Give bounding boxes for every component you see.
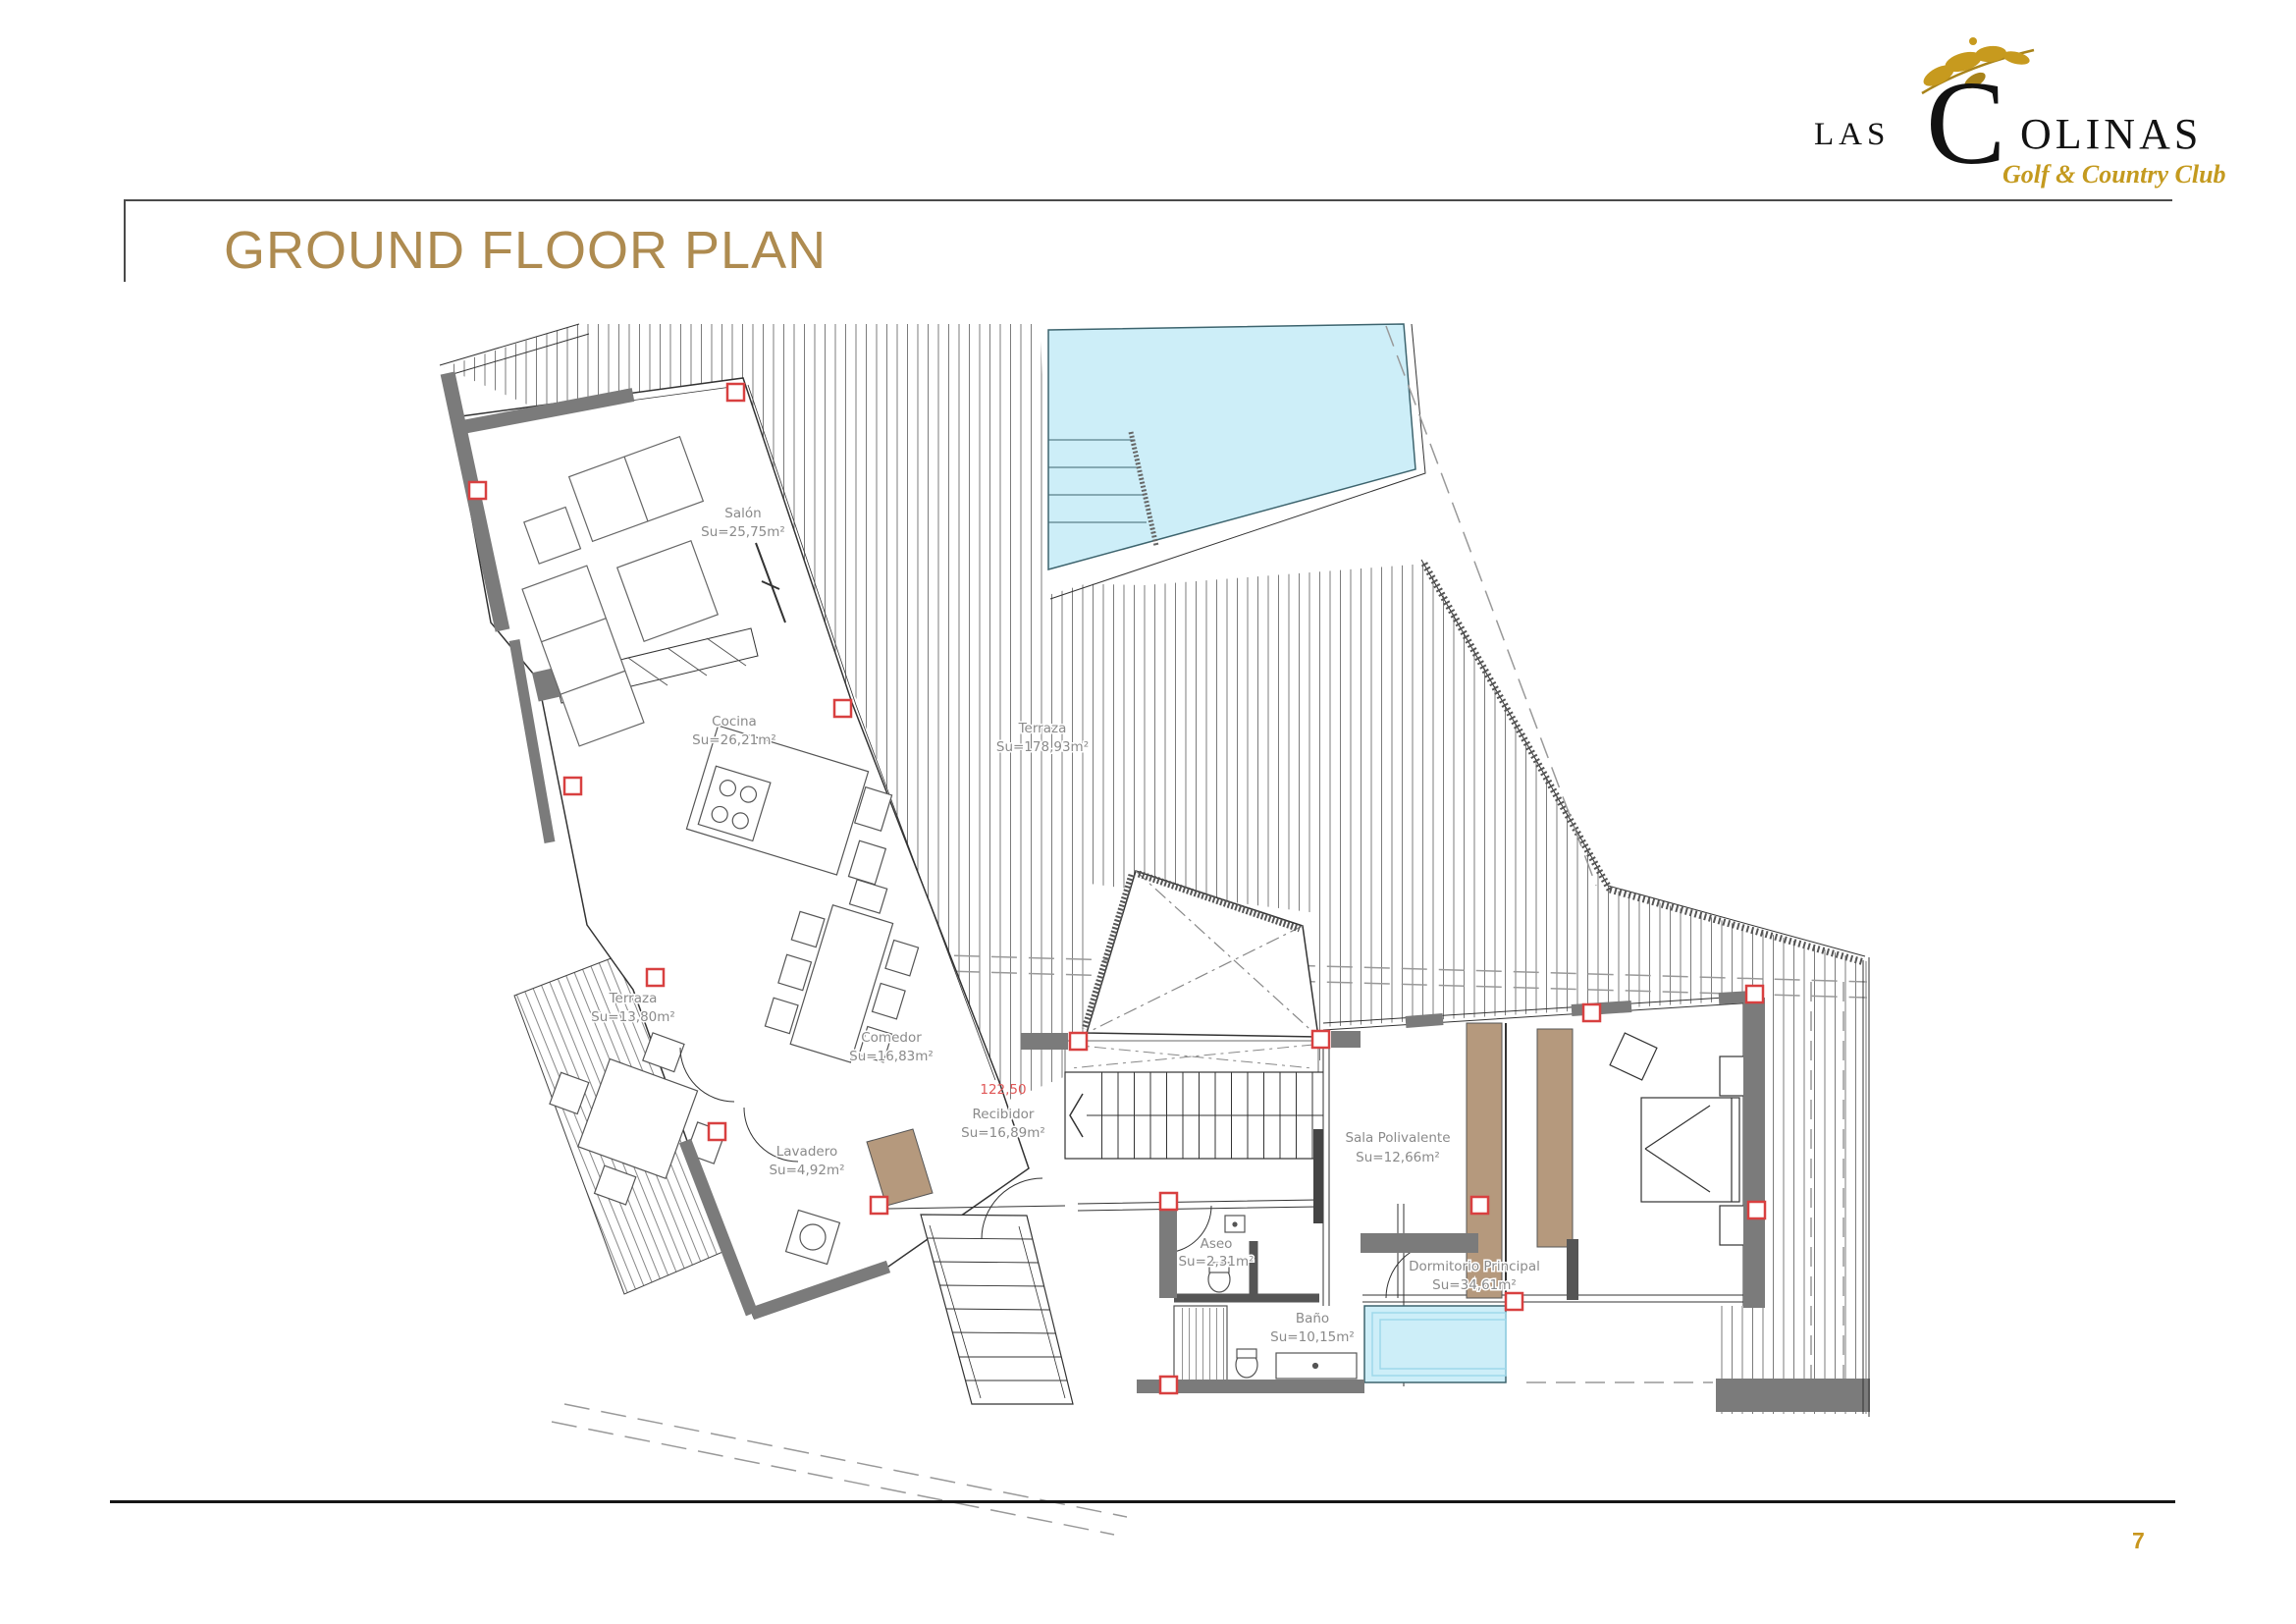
room-label-dormitorio: Dormitorio Principal	[1409, 1259, 1540, 1274]
room-area-aseo: Su=2,31m²	[1178, 1254, 1254, 1270]
exterior-stair	[921, 1215, 1073, 1404]
room-label-terraza-small: Terraza	[609, 991, 658, 1006]
room-label-comedor: Comedor	[861, 1030, 922, 1046]
room-area-sala-polivalente: Su=12,66m²	[1356, 1150, 1440, 1165]
page-number: 7	[2132, 1528, 2145, 1554]
room-label-salon: Salón	[724, 506, 761, 521]
floor-plan: Salón Su=25,75m² Cocina Su=26,21m² Terra…	[0, 0, 2296, 1624]
document-page: GROUND FLOOR PLAN LAS C OLINAS Golf & Co…	[0, 0, 2296, 1624]
room-area-cocina: Su=26,21m²	[692, 732, 776, 748]
floor-level-mark: 122,50	[980, 1082, 1026, 1098]
wardrobe	[1467, 1023, 1502, 1298]
room-area-dormitorio: Su=34,61m²	[1432, 1277, 1517, 1293]
room-area-bano: Su=10,15m²	[1270, 1329, 1355, 1345]
room-label-sala-polivalente: Sala Polivalente	[1345, 1130, 1450, 1146]
room-label-aseo: Aseo	[1201, 1236, 1233, 1252]
room-label-terraza-main: Terraza	[1018, 721, 1067, 736]
room-area-lavadero: Su=4,92m²	[769, 1163, 844, 1178]
plunge-pool	[1364, 1306, 1506, 1382]
wardrobe	[1537, 1029, 1573, 1247]
room-label-cocina: Cocina	[712, 714, 757, 730]
room-label-lavadero: Lavadero	[776, 1144, 837, 1160]
room-area-comedor: Su=16,83m²	[849, 1049, 934, 1064]
room-area-salon: Su=25,75m²	[701, 524, 785, 540]
footer-rule	[110, 1500, 2175, 1503]
room-label-recibidor: Recibidor	[973, 1107, 1035, 1122]
room-area-terraza-main: Su=178,93m²	[996, 739, 1089, 755]
room-area-terraza-small: Su=13,80m²	[591, 1009, 675, 1025]
interior-stair	[1065, 1041, 1327, 1159]
swimming-pool	[1041, 324, 1439, 599]
room-label-bano: Baño	[1296, 1311, 1329, 1326]
room-area-recibidor: Su=16,89m²	[961, 1125, 1045, 1141]
